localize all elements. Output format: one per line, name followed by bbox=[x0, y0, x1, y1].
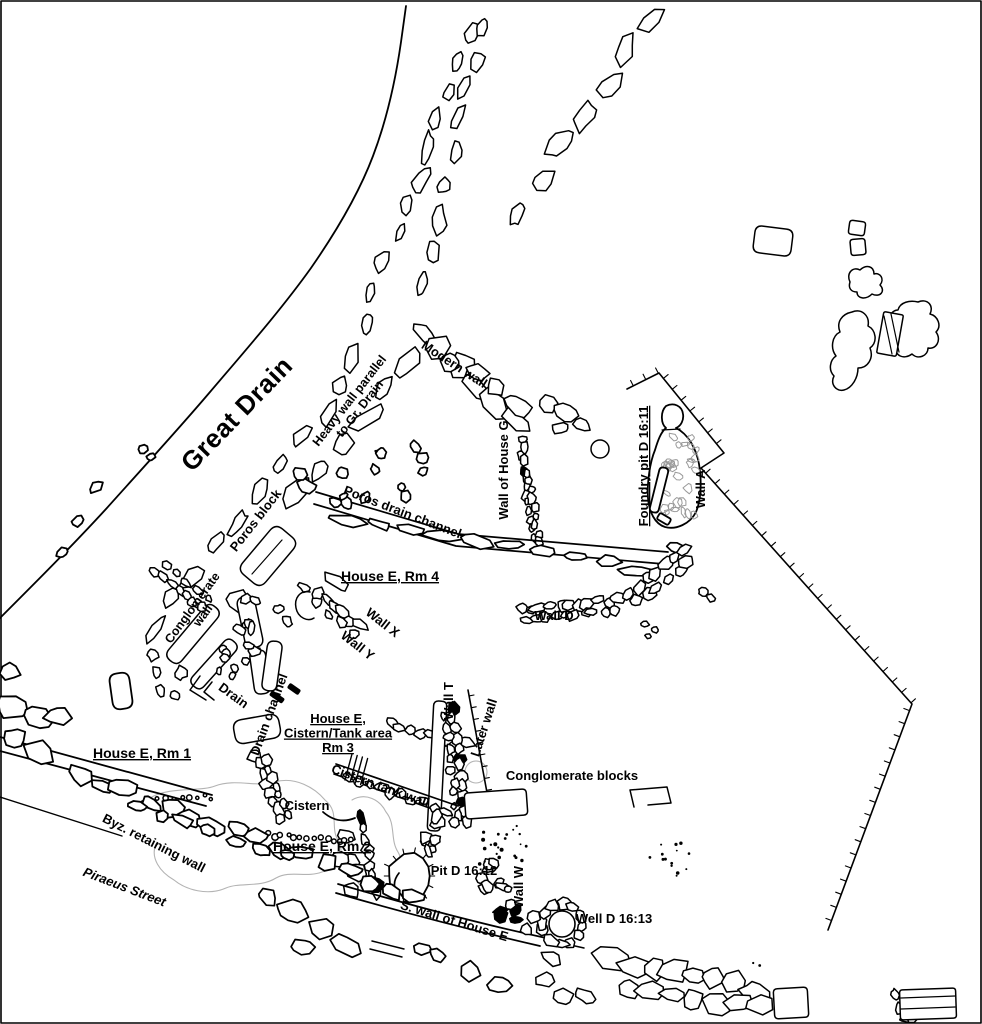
label-s-wall-house-e: S. wall of House E bbox=[399, 897, 511, 944]
label-house-e-cistern-line3: Rm 3 bbox=[322, 740, 354, 755]
label-later-wall: Later wall bbox=[467, 697, 500, 759]
label-wall-d: Wall D bbox=[534, 608, 573, 623]
label-wall-a: Wall A bbox=[693, 469, 708, 508]
south-rubble-wall bbox=[591, 947, 808, 1019]
label-wall-x: Wall X bbox=[363, 605, 403, 641]
label-drain: Drain bbox=[216, 680, 252, 712]
isolated-blocks-northeast bbox=[753, 220, 939, 390]
label-house-e-cistern-area: House E, Cistern/Tank area Rm 3 bbox=[284, 711, 393, 755]
label-cistern: Cistern bbox=[285, 798, 330, 813]
label-piraeus-street: Piraeus Street bbox=[81, 864, 169, 910]
plan-labels: Great Drain Modern wall Heavy wall paral… bbox=[81, 337, 708, 944]
label-house-e-rm1: House E, Rm 1 bbox=[93, 745, 191, 761]
poros-drain-channel-structure bbox=[293, 440, 685, 576]
label-pit-d-16-12: Pit D 16:12 bbox=[431, 863, 497, 878]
label-house-e-rm4: House E, Rm 4 bbox=[341, 568, 439, 584]
label-cistern-tank-wall: Cistern tank wall bbox=[329, 761, 431, 810]
wall-of-house-g-stones bbox=[517, 395, 609, 547]
label-wall-of-house-g: Wall of House G bbox=[496, 420, 511, 519]
label-house-e-rm2: House E, Rm 2 bbox=[273, 838, 371, 854]
label-conglomerate-blocks: Conglomerate blocks bbox=[506, 768, 638, 783]
excavation-plan-page: Great Drain Modern wall Heavy wall paral… bbox=[0, 0, 982, 1024]
site-plan-drawing: Great Drain Modern wall Heavy wall paral… bbox=[0, 0, 982, 1024]
label-house-e-cistern-line2: Cistern/Tank area bbox=[284, 726, 393, 741]
street-wall-upper-east bbox=[510, 9, 664, 224]
label-well-d-16-13: Well D 16:13 bbox=[576, 911, 652, 926]
label-wall-w: Wall W bbox=[511, 865, 526, 908]
label-wall-t: Wall T bbox=[441, 682, 456, 720]
label-foundry-pit: Foundry pit D 16:11 bbox=[636, 406, 651, 527]
label-house-e-cistern-line1: House E, bbox=[310, 711, 366, 726]
conglomerate-blocks-stones bbox=[464, 787, 671, 819]
southeast-blocks bbox=[891, 988, 957, 1022]
cistern-mouth bbox=[323, 812, 355, 820]
